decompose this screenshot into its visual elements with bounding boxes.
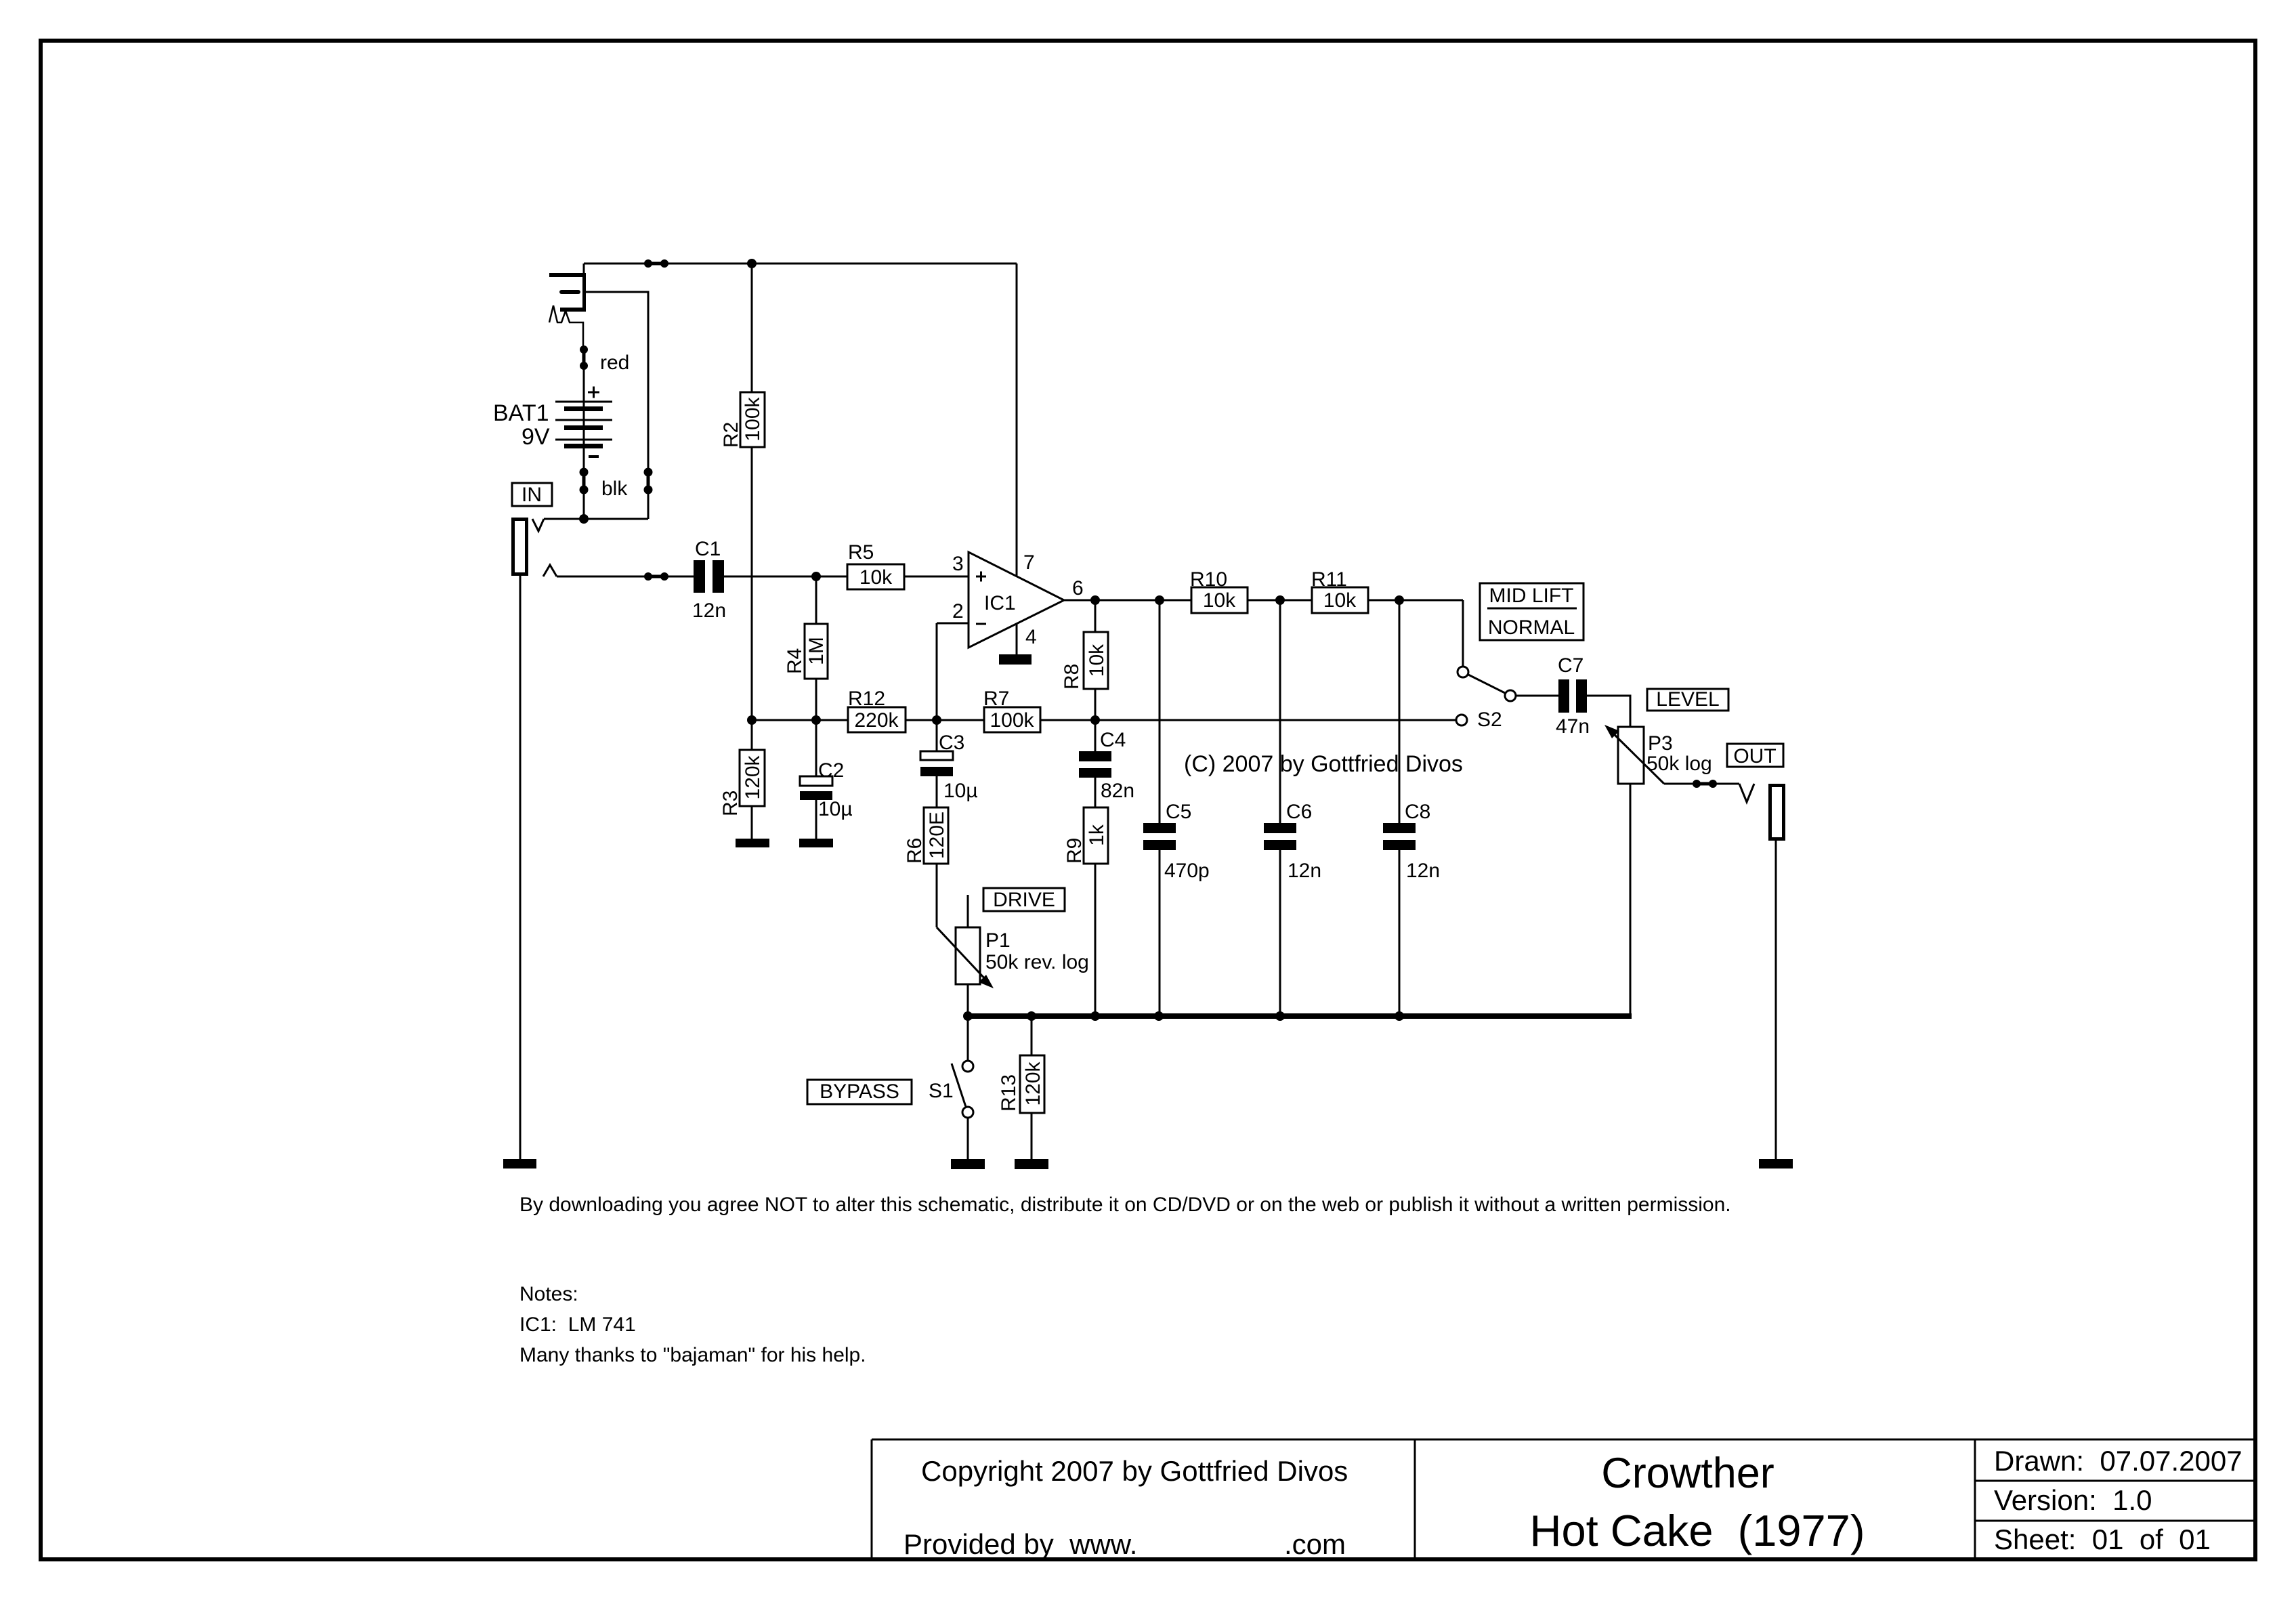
svg-text:R13: R13 (998, 1074, 1020, 1112)
svg-text:4: 4 (1025, 626, 1037, 648)
svg-text:P1: P1 (985, 929, 1011, 952)
svg-text:12n: 12n (692, 599, 726, 622)
svg-text:6: 6 (1072, 577, 1084, 599)
svg-text:C7: C7 (1558, 654, 1583, 677)
svg-text:MID LIFT: MID LIFT (1489, 585, 1574, 607)
svg-text:1M: 1M (805, 637, 828, 665)
svg-text:R4: R4 (784, 648, 806, 674)
svg-text:Notes:: Notes: (519, 1283, 578, 1305)
svg-text:10k: 10k (1086, 644, 1108, 677)
svg-text:12n: 12n (1406, 860, 1440, 882)
svg-text:R10: R10 (1190, 568, 1227, 591)
svg-text:Drawn: 07.07.2007: Drawn: 07.07.2007 (1994, 1445, 2242, 1477)
svg-text:82n: 82n (1101, 780, 1134, 802)
svg-text:S2: S2 (1477, 709, 1502, 731)
svg-text:OUT: OUT (1733, 745, 1776, 767)
svg-text:100k: 100k (742, 396, 764, 441)
svg-text:IN: IN (522, 484, 542, 506)
svg-text:blk: blk (601, 478, 628, 500)
svg-text:120k: 120k (742, 755, 764, 799)
svg-text:2: 2 (952, 600, 964, 623)
svg-text:470p: 470p (1164, 860, 1210, 882)
svg-text:Many thanks to "bajaman" for h: Many thanks to "bajaman" for his help. (519, 1344, 866, 1366)
svg-text:Version: 1.0: Version: 1.0 (1994, 1484, 2152, 1516)
svg-text:7: 7 (1023, 551, 1035, 574)
svg-text:C6: C6 (1286, 801, 1312, 823)
svg-text:R2: R2 (720, 422, 742, 448)
svg-text:S1: S1 (929, 1080, 954, 1102)
svg-text:R9: R9 (1063, 838, 1086, 864)
svg-text:10k: 10k (1323, 589, 1357, 612)
svg-text:12n: 12n (1288, 860, 1321, 882)
svg-text:IC1: LM 741: IC1: LM 741 (519, 1313, 636, 1336)
svg-text:R6: R6 (903, 838, 926, 864)
svg-text:Provided by www.: Provided by www. (903, 1528, 1137, 1560)
svg-text:10µ: 10µ (943, 780, 978, 802)
svg-text:220k: 220k (854, 709, 899, 732)
svg-text:10k: 10k (859, 566, 893, 589)
svg-text:NORMAL: NORMAL (1488, 616, 1575, 639)
svg-text:IC1: IC1 (984, 592, 1016, 614)
svg-text:C8: C8 (1405, 801, 1430, 823)
svg-text:By downloading you agree NOT t: By downloading you agree NOT to alter th… (519, 1194, 1731, 1216)
svg-text:9V: 9V (522, 424, 550, 450)
svg-text:LEVEL: LEVEL (1656, 688, 1719, 711)
svg-text:R8: R8 (1061, 664, 1083, 690)
svg-text:R3: R3 (719, 791, 742, 816)
svg-text:.com: .com (1284, 1528, 1346, 1560)
svg-text:C4: C4 (1100, 729, 1126, 751)
svg-text:C5: C5 (1166, 801, 1191, 823)
svg-text:R5: R5 (848, 541, 874, 564)
svg-text:120E: 120E (926, 812, 948, 859)
svg-text:C2: C2 (818, 759, 844, 782)
svg-text:120k: 120k (1022, 1061, 1044, 1106)
svg-text:Copyright 2007 by Gottfried Di: Copyright 2007 by Gottfried Divos (921, 1455, 1348, 1487)
svg-text:50k rev. log: 50k rev. log (985, 951, 1089, 973)
svg-text:Crowther: Crowther (1601, 1450, 1774, 1497)
svg-text:red: red (600, 352, 629, 374)
svg-text:C3: C3 (939, 732, 964, 754)
svg-text:DRIVE: DRIVE (993, 889, 1055, 911)
svg-text:50k log: 50k log (1646, 753, 1712, 775)
svg-text:P3: P3 (1648, 732, 1673, 755)
svg-text:BYPASS: BYPASS (820, 1080, 899, 1103)
svg-text:R7: R7 (983, 688, 1009, 710)
svg-text:47n: 47n (1556, 715, 1590, 738)
svg-text:R11: R11 (1311, 568, 1347, 591)
svg-text:3: 3 (952, 553, 964, 575)
svg-text:Sheet: 01 of 01: Sheet: 01 of 01 (1994, 1523, 2211, 1555)
svg-text:100k: 100k (990, 709, 1034, 732)
svg-text:R12: R12 (848, 688, 885, 710)
svg-text:BAT1: BAT1 (493, 400, 549, 426)
svg-text:C1: C1 (695, 538, 721, 560)
svg-text:10µ: 10µ (818, 798, 853, 820)
svg-text:10k: 10k (1203, 589, 1236, 612)
svg-text:1k: 1k (1086, 824, 1108, 846)
svg-text:(C) 2007 by Gottfried Divos: (C) 2007 by Gottfried Divos (1184, 751, 1463, 777)
svg-text:Hot Cake (1977): Hot Cake (1977) (1530, 1506, 1865, 1555)
